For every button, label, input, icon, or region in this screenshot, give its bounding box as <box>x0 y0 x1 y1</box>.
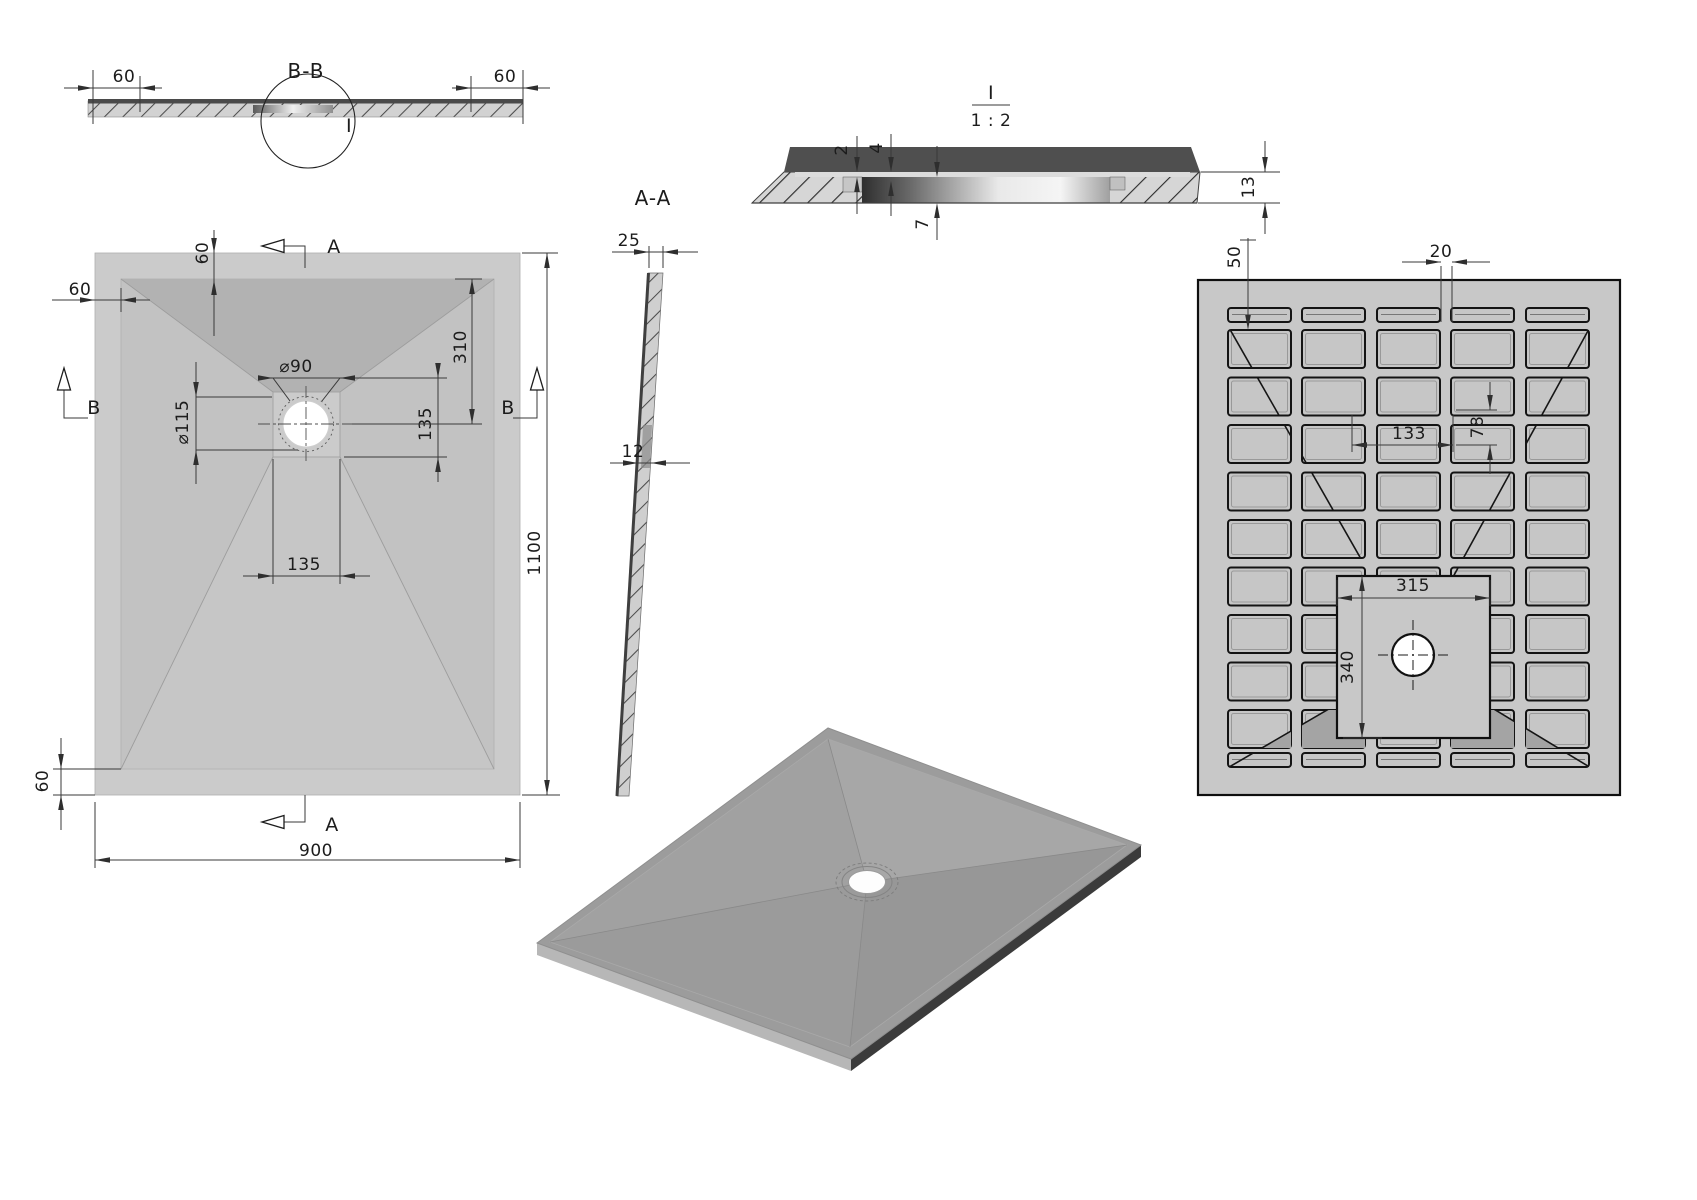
aa-title: A-A <box>635 186 672 210</box>
dim-arrow-icon <box>651 460 666 466</box>
detail-scale: 1 : 2 <box>971 111 1012 131</box>
dim-label: 78 <box>1468 416 1488 439</box>
dim-arrow-icon <box>58 795 64 810</box>
bottom-recess-cell <box>1302 520 1365 558</box>
bottom-recess-cell <box>1228 520 1291 558</box>
dim-label: 135 <box>287 555 321 575</box>
detail-title: I <box>988 82 994 104</box>
bb-drain-recess <box>253 105 333 113</box>
section-label-a: A <box>327 236 341 258</box>
bottom-recess-cell <box>1302 425 1365 463</box>
bottom-recess-cell <box>1302 330 1365 368</box>
dim-arrow-icon <box>663 249 678 255</box>
section-b-arrow-left-icon <box>58 368 71 390</box>
cad-drawing-sheet: B-B I 60 60 60 60 ⌀90 ⌀115 310 135 135 9… <box>0 0 1697 1200</box>
dim-arrow-icon <box>505 857 520 863</box>
dim-label: 50 <box>1225 246 1245 269</box>
dim-label: 310 <box>451 330 471 364</box>
section-a-arrow-bottom-icon <box>262 816 284 829</box>
bottom-recess-cell <box>1526 473 1589 511</box>
bottom-recess-cell <box>1451 473 1514 511</box>
dim-label: 315 <box>1396 576 1430 596</box>
bottom-recess-cell <box>1526 615 1589 653</box>
bb-surface-band <box>88 99 523 104</box>
bottom-recess-cell <box>1526 378 1589 416</box>
dim-arrow-icon <box>544 780 550 795</box>
section-b-arrow-right-icon <box>531 368 544 390</box>
bottom-recess-cell <box>1451 330 1514 368</box>
section-label-b: B <box>87 397 101 419</box>
bottom-recess-cell <box>1228 425 1291 463</box>
detail-drain-recess <box>862 177 1110 203</box>
dim-arrow-icon <box>58 754 64 769</box>
bottom-recess-cell <box>1302 473 1365 511</box>
dim-label: ⌀90 <box>279 357 312 377</box>
detail-step-right <box>1110 177 1125 190</box>
view-bottom: 50 20 133 78 315 340 <box>1198 242 1620 795</box>
dim-label: 900 <box>299 841 333 861</box>
dim-label: 60 <box>494 67 517 87</box>
dim-arrow-icon <box>456 85 471 91</box>
dim-label: 4 <box>867 142 887 153</box>
bottom-recess-cell <box>1302 378 1365 416</box>
dim-label: 7 <box>913 218 933 229</box>
dim-label: 25 <box>618 231 641 251</box>
aa-section-strip <box>617 273 663 796</box>
dim-label: 340 <box>1338 650 1358 684</box>
dim-arrow-icon <box>544 253 550 268</box>
bottom-recess-cell <box>1228 473 1291 511</box>
view-section-aa: A-A 25 12 <box>617 186 671 796</box>
view-plan: 60 60 ⌀90 ⌀115 310 135 135 900 1100 60 A… <box>33 236 545 861</box>
section-label-b: B <box>501 397 515 419</box>
bottom-recess-cell <box>1526 425 1589 463</box>
dim-arrow-icon <box>1452 259 1467 265</box>
iso-drain-hole <box>849 871 886 894</box>
dim-arrow-icon <box>523 85 538 91</box>
section-a-arrow-top-icon <box>262 240 284 253</box>
bb-title: B-B <box>288 59 325 83</box>
bottom-recess-cell <box>1377 330 1440 368</box>
bottom-recess-cell <box>1451 520 1514 558</box>
dim-arrow-icon <box>1262 157 1268 172</box>
dim-label: 60 <box>113 67 136 87</box>
dim-label: 60 <box>69 280 92 300</box>
bottom-recess-cell <box>1228 330 1291 368</box>
bottom-recess-cell <box>1377 473 1440 511</box>
detail-lip-gap <box>795 172 1190 177</box>
view-detail-i: I 1 : 2 2 4 7 13 <box>752 82 1259 230</box>
dim-label: 60 <box>33 770 53 793</box>
bottom-recess-cell <box>1526 330 1589 368</box>
dim-arrow-icon <box>95 857 110 863</box>
dim-arrow-icon <box>1262 203 1268 218</box>
dim-label: 133 <box>1392 424 1426 444</box>
detail-callout-circle <box>261 74 355 168</box>
dim-label: ⌀115 <box>173 400 193 445</box>
dim-label: 1100 <box>525 530 545 575</box>
cad-drawing: B-B I 60 60 60 60 ⌀90 ⌀115 310 135 135 9… <box>0 0 1697 1200</box>
bottom-recess-cell <box>1526 663 1589 701</box>
bottom-recess-cell <box>1228 663 1291 701</box>
bottom-recess-cell <box>1228 615 1291 653</box>
bottom-recess-cell <box>1228 378 1291 416</box>
dim-label: 20 <box>1430 242 1453 262</box>
bottom-recess-cell <box>1377 378 1440 416</box>
view-section-bb: B-B I 60 60 <box>88 59 523 168</box>
section-b-marker-left <box>64 368 88 418</box>
dim-arrow-icon <box>78 85 93 91</box>
section-label-a: A <box>325 814 339 836</box>
dim-label: 2 <box>832 144 852 155</box>
dim-arrow-icon <box>934 203 940 218</box>
bottom-recess-cell <box>1526 520 1589 558</box>
bottom-recess-cell <box>1228 568 1291 606</box>
dim-arrow-icon <box>634 249 649 255</box>
dim-label: 60 <box>193 242 213 265</box>
dim-label: 13 <box>1239 176 1259 199</box>
bottom-recess-cell <box>1526 568 1589 606</box>
detail-callout-label: I <box>346 115 352 137</box>
dim-arrow-icon <box>140 85 155 91</box>
bottom-recess-cell <box>1377 520 1440 558</box>
dim-label: 12 <box>622 442 645 462</box>
